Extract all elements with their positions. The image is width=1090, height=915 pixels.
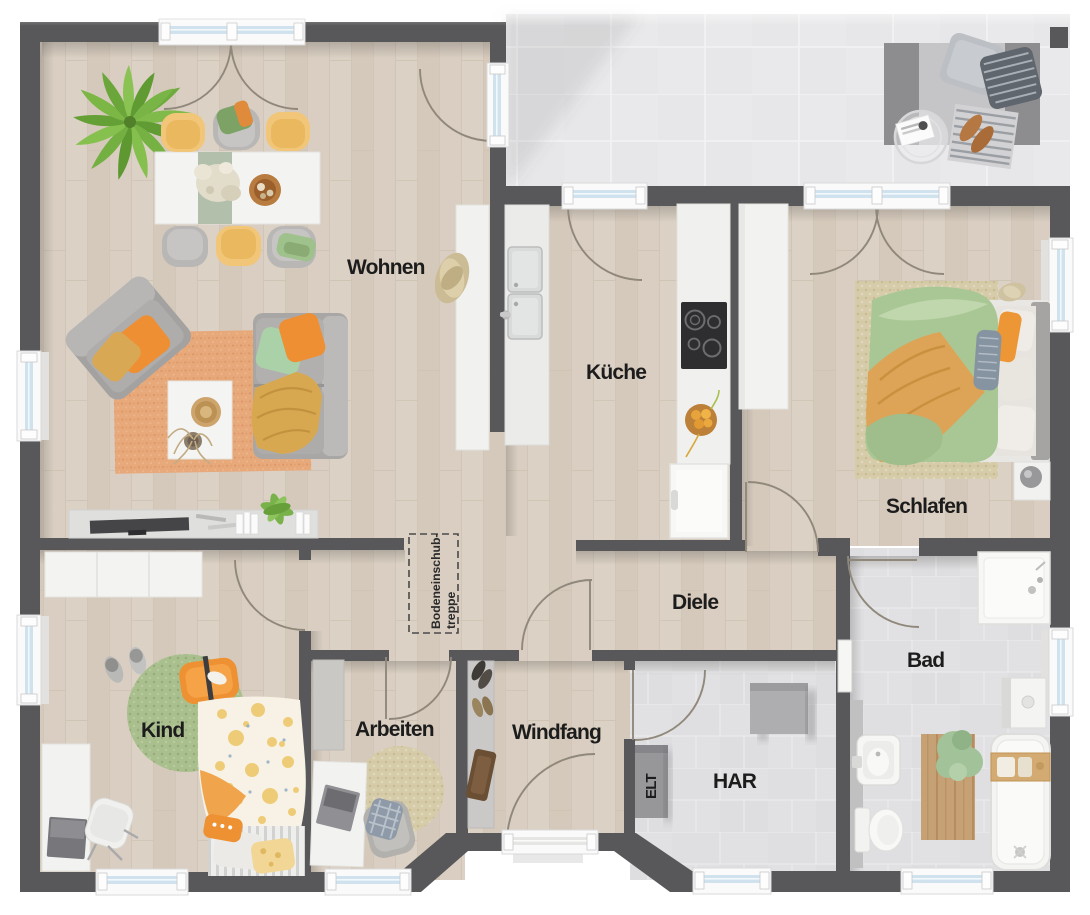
svg-text:Windfang: Windfang	[512, 721, 601, 744]
svg-text:ELT: ELT	[643, 774, 660, 799]
svg-text:Arbeiten: Arbeiten	[355, 718, 434, 741]
svg-text:Küche: Küche	[586, 361, 646, 384]
svg-text:Wohnen: Wohnen	[347, 256, 425, 279]
svg-text:HAR: HAR	[713, 770, 757, 793]
svg-text:Schlafen: Schlafen	[886, 495, 967, 518]
svg-text:Bodeneinschub-: Bodeneinschub-	[429, 534, 443, 629]
svg-text:Kind: Kind	[141, 719, 184, 742]
svg-text:Diele: Diele	[672, 591, 718, 614]
svg-text:treppe: treppe	[444, 592, 458, 629]
svg-text:Bad: Bad	[907, 649, 944, 672]
